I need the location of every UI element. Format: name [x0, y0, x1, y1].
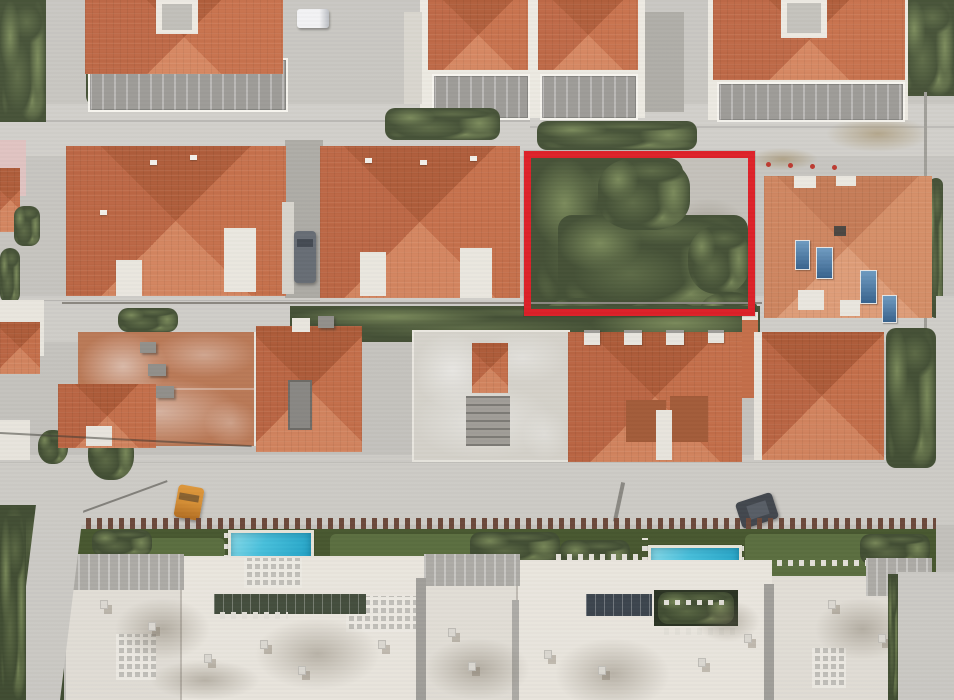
vegetation-bottom-left-edge [0, 516, 26, 700]
roof-chimney [420, 160, 427, 165]
complex-fence [64, 518, 936, 529]
rooftop-structure [292, 318, 310, 332]
roof-vent [698, 658, 706, 667]
balcony-grid [244, 558, 302, 588]
roof-chimney [100, 210, 107, 215]
roof-vent [828, 600, 836, 609]
villa-top-center-roof-left [428, 0, 528, 70]
house-row3-right-parapet [754, 332, 762, 460]
villa-top-right-terrace [717, 82, 905, 122]
villa-row2-left-recess [116, 260, 142, 296]
roof-vent [260, 640, 268, 649]
solar-water-heater [882, 295, 897, 323]
roof-chimney [190, 155, 197, 160]
roof-dormer [666, 330, 684, 345]
pavement-marker [766, 162, 771, 167]
roof-vent [448, 628, 456, 637]
roof-shadow [150, 660, 260, 700]
solar-water-heater [816, 247, 833, 279]
villa-row2-right-dormer [794, 176, 816, 188]
street-right-vertical [936, 296, 954, 486]
left-bushes [14, 206, 40, 246]
highlighted-plot-boundary [524, 151, 755, 316]
roof-vent [468, 662, 476, 671]
block-gap [764, 584, 774, 700]
road-seam [0, 462, 954, 463]
villa-top-center-roof-right [538, 0, 638, 70]
road-seam [0, 300, 320, 301]
solar-water-heater [795, 240, 810, 270]
villa-row2-left-sidewall [282, 202, 294, 294]
villa-row2-right-dormer [836, 176, 856, 186]
villa-top-right-court-floor [787, 3, 821, 33]
roof-vent [100, 600, 108, 609]
villa-row2-center-recess [360, 252, 386, 296]
aerial-photo [0, 0, 954, 700]
roof-shadow [255, 618, 380, 690]
unfinished-stair-court [466, 396, 510, 446]
roof-shadow [115, 598, 210, 660]
roof-vent [544, 650, 552, 659]
solar-water-heater [860, 270, 877, 304]
solar-panel-array [214, 594, 366, 614]
apartment-facade [68, 554, 184, 590]
villa-row2-center-recess [460, 248, 492, 298]
small-house-left-wall [0, 420, 30, 460]
villa-top-center-wing [404, 12, 422, 104]
roof-shadow [555, 638, 670, 700]
street-tree-canopy [385, 108, 500, 140]
white-van [297, 9, 329, 28]
roof-dormer [708, 330, 724, 343]
ac-unit [140, 342, 156, 353]
villa-row2-right-recess [798, 290, 824, 310]
roof-vent [878, 634, 886, 643]
apartment-facade [424, 554, 520, 586]
villa-row2-right-recess [840, 300, 860, 316]
ac-unit [148, 364, 166, 376]
roof-vent [598, 666, 606, 675]
villa-row2-left-recess [224, 228, 256, 292]
solar-panel-array [586, 594, 652, 616]
left-bushes [0, 248, 20, 304]
dirt-stain [748, 148, 818, 170]
pavement-marker [788, 163, 793, 168]
garden-right [886, 328, 936, 468]
villa-top-center-terrace-right [540, 74, 638, 120]
street-bottom-right [898, 572, 954, 700]
roof-chimney [365, 158, 372, 163]
house-row3-right-roof [760, 332, 884, 460]
roof-chimney [470, 156, 477, 161]
roof-vent [204, 654, 212, 663]
garden-shrubs [92, 530, 152, 556]
hedge-bottom-right [888, 574, 898, 700]
roof-vent [298, 666, 306, 675]
vegetation-top-right [903, 0, 954, 96]
roof-dormer [584, 330, 600, 345]
pavement-marker [832, 165, 837, 170]
roof-vent [148, 622, 156, 631]
rooftop-unit [834, 226, 846, 236]
house-row3-brown-roof [670, 396, 708, 442]
villa-top-left-skylight [162, 4, 192, 30]
roof-chimney [150, 160, 157, 165]
roof-vent [378, 640, 386, 649]
roof-vent [744, 634, 752, 643]
house-row3-center-roof [568, 332, 742, 462]
house-row3-skylight-court [288, 380, 312, 430]
vegetation-top-left [0, 0, 46, 122]
small-house-left-roof [0, 322, 40, 374]
roof-dormer [624, 330, 642, 345]
villa-row2-right-roof [764, 176, 932, 318]
street-tree-canopy [537, 121, 697, 150]
backyard-hedge [118, 308, 178, 332]
unfinished-building-dormer [472, 343, 508, 393]
pavement-marker [810, 164, 815, 169]
roof-shadow [425, 638, 530, 700]
rooftop-structure [318, 316, 334, 328]
house-row3-court [656, 410, 672, 460]
ac-unit [156, 386, 174, 398]
parked-car-gray-windshield [297, 239, 313, 247]
